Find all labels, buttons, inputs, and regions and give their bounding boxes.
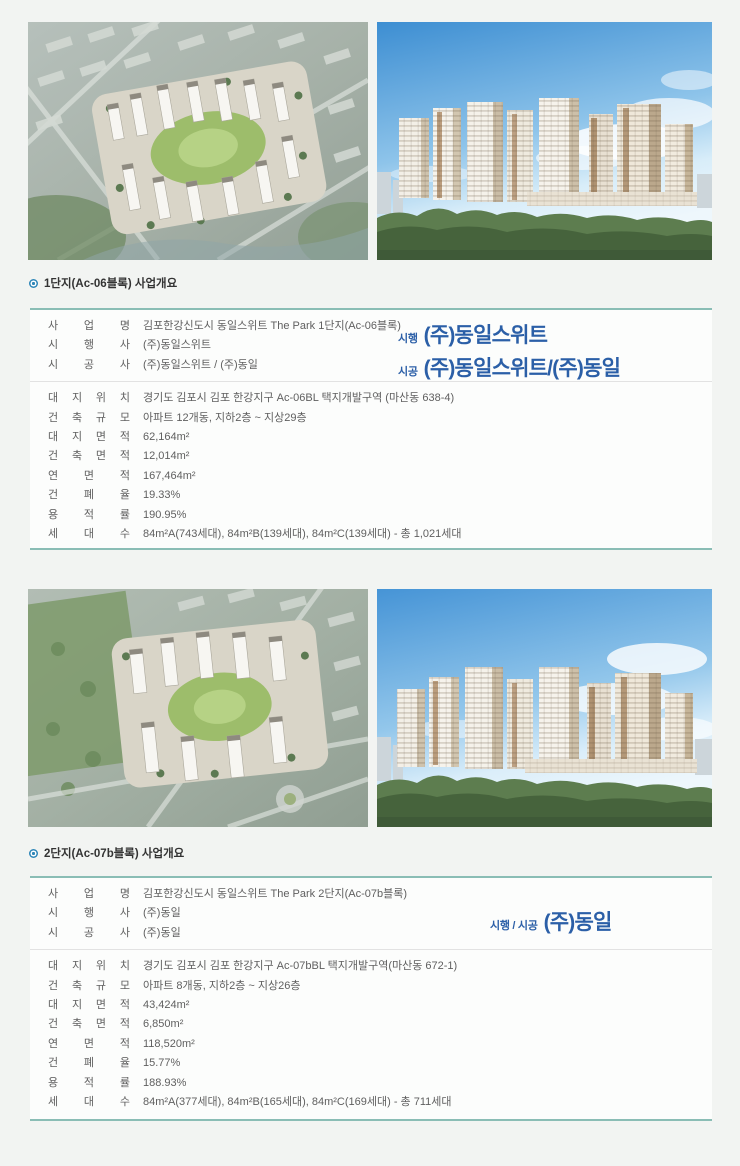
row-value: 43,424m²: [143, 999, 189, 1011]
elevation-rendering-complex-1: [377, 22, 712, 260]
aerial-rendering-complex-1: [28, 22, 368, 260]
logo-company-name: (주)동일스위트: [424, 319, 548, 349]
row-value: (주)동일스위트: [143, 339, 211, 351]
row-value: 84m²A(743세대), 84m²B(139세대), 84m²C(139세대)…: [143, 528, 462, 540]
info-row: 시 행 사(주)동일: [48, 904, 712, 923]
row-label: 용 적 률: [48, 506, 130, 525]
image-row-2: [28, 589, 712, 827]
logo-line: 시행 (주)동일스위트: [398, 319, 620, 349]
info-row: 용 적 률190.95%: [48, 506, 712, 525]
row-label: 세 대 수: [48, 525, 130, 544]
info-row: 대 지 위 치경기도 김포시 김포 한강지구 Ac-07bBL 택지개발구역(마…: [48, 957, 712, 976]
info-table-2: 사 업 명김포한강신도시 동일스위트 The Park 2단지(Ac-07b블록…: [30, 876, 712, 1121]
row-value: 아파트 12개동, 지하2층 ~ 지상29층: [143, 412, 307, 424]
row-label: 시 행 사: [48, 904, 130, 923]
logo-company-name: (주)동일: [544, 906, 612, 936]
row-value: 188.93%: [143, 1077, 186, 1089]
row-label: 사 업 명: [48, 317, 130, 336]
bullet-icon: [29, 849, 38, 858]
table-rows-bottom: 대 지 위 치경기도 김포시 김포 한강지구 Ac-07bBL 택지개발구역(마…: [30, 950, 712, 1112]
row-label: 대 지 면 적: [48, 996, 130, 1015]
info-row: 건 축 규 모아파트 8개동, 지하2층 ~ 지상26층: [48, 977, 712, 996]
info-row: 시 공 사(주)동일: [48, 924, 712, 943]
info-row: 건 축 면 적6,850m²: [48, 1015, 712, 1034]
elevation-rendering-complex-2: [377, 589, 712, 827]
logo-line: 시행 / 시공 (주)동일: [490, 906, 612, 936]
row-label: 건 축 면 적: [48, 1015, 130, 1034]
row-label: 건 축 면 적: [48, 447, 130, 466]
info-row: 연 면 적118,520m²: [48, 1035, 712, 1054]
row-label: 건 축 규 모: [48, 409, 130, 428]
row-value: 167,464m²: [143, 470, 196, 482]
row-label: 건 축 규 모: [48, 977, 130, 996]
row-label: 건 폐 율: [48, 1054, 130, 1073]
info-row: 대 지 위 치경기도 김포시 김포 한강지구 Ac-06BL 택지개발구역 (마…: [48, 389, 712, 408]
section-title-2: 2단지(Ac-07b블록) 사업개요: [29, 845, 184, 861]
info-row: 연 면 적167,464m²: [48, 467, 712, 486]
info-row: 대 지 면 적62,164m²: [48, 428, 712, 447]
logo-line: 시공 (주)동일스위트/(주)동일: [398, 352, 620, 382]
row-label: 대 지 면 적: [48, 428, 130, 447]
info-row: 건 축 면 적12,014m²: [48, 447, 712, 466]
row-label: 대 지 위 치: [48, 957, 130, 976]
info-row: 용 적 률188.93%: [48, 1074, 712, 1093]
row-label: 사 업 명: [48, 885, 130, 904]
info-row: 건 축 규 모아파트 12개동, 지하2층 ~ 지상29층: [48, 409, 712, 428]
row-value: 62,164m²: [143, 431, 189, 443]
row-value: 190.95%: [143, 509, 186, 521]
info-table-1: 사 업 명김포한강신도시 동일스위트 The Park 1단지(Ac-06블록)…: [30, 308, 712, 550]
aerial-rendering-complex-2: [28, 589, 368, 827]
row-label: 용 적 률: [48, 1074, 130, 1093]
row-value: 아파트 8개동, 지하2층 ~ 지상26층: [143, 980, 301, 992]
info-row: 사 업 명김포한강신도시 동일스위트 The Park 2단지(Ac-07b블록…: [48, 885, 712, 904]
row-value: 김포한강신도시 동일스위트 The Park 2단지(Ac-07b블록): [143, 888, 407, 900]
image-row-1: [28, 22, 712, 260]
info-row: 건 폐 율15.77%: [48, 1054, 712, 1073]
row-label: 건 폐 율: [48, 486, 130, 505]
row-label: 연 면 적: [48, 1035, 130, 1054]
row-value: 경기도 김포시 김포 한강지구 Ac-07bBL 택지개발구역(마산동 672-…: [143, 960, 457, 972]
row-label: 대 지 위 치: [48, 389, 130, 408]
row-label: 연 면 적: [48, 467, 130, 486]
row-value: 19.33%: [143, 489, 180, 501]
logo-role-label: 시행: [398, 330, 418, 346]
row-value: 경기도 김포시 김포 한강지구 Ac-06BL 택지개발구역 (마산동 638-…: [143, 392, 454, 404]
row-value: 김포한강신도시 동일스위트 The Park 1단지(Ac-06블록): [143, 320, 401, 332]
section-title-1: 1단지(Ac-06블록) 사업개요: [29, 275, 177, 291]
row-value: (주)동일스위트 / (주)동일: [143, 359, 258, 371]
logo-role-label: 시공: [398, 363, 418, 379]
page: 1단지(Ac-06블록) 사업개요 사 업 명김포한강신도시 동일스위트 The…: [0, 0, 740, 1166]
row-value: 12,014m²: [143, 450, 189, 462]
row-value: (주)동일: [143, 907, 181, 919]
info-row: 세 대 수84m²A(743세대), 84m²B(139세대), 84m²C(1…: [48, 525, 712, 544]
row-value: (주)동일: [143, 927, 181, 939]
row-value: 6,850m²: [143, 1018, 183, 1030]
row-label: 시 행 사: [48, 336, 130, 355]
section-title-text: 1단지(Ac-06블록) 사업개요: [44, 275, 177, 291]
row-label: 세 대 수: [48, 1093, 130, 1112]
row-label: 시 공 사: [48, 356, 130, 375]
row-value: 118,520m²: [143, 1038, 195, 1050]
table-rows-bottom: 대 지 위 치경기도 김포시 김포 한강지구 Ac-06BL 택지개발구역 (마…: [30, 382, 712, 544]
section-title-text: 2단지(Ac-07b블록) 사업개요: [44, 845, 184, 861]
info-row: 세 대 수84m²A(377세대), 84m²B(165세대), 84m²C(1…: [48, 1093, 712, 1112]
row-value: 84m²A(377세대), 84m²B(165세대), 84m²C(169세대)…: [143, 1096, 452, 1108]
logo-company-name: (주)동일스위트/(주)동일: [424, 352, 621, 382]
info-row: 건 폐 율19.33%: [48, 486, 712, 505]
company-logo-2: 시행 / 시공 (주)동일: [490, 906, 612, 939]
logo-role-label: 시행 / 시공: [490, 917, 538, 933]
company-logo-1: 시행 (주)동일스위트 시공 (주)동일스위트/(주)동일: [398, 319, 620, 385]
row-label: 시 공 사: [48, 924, 130, 943]
row-value: 15.77%: [143, 1057, 180, 1069]
info-row: 대 지 면 적43,424m²: [48, 996, 712, 1015]
bullet-icon: [29, 279, 38, 288]
